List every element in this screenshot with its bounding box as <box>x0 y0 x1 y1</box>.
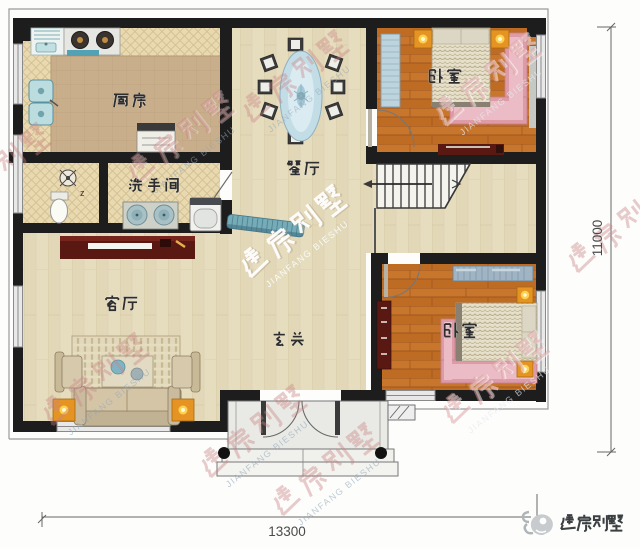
svg-text:z: z <box>80 188 85 198</box>
svg-text:11000: 11000 <box>590 220 605 257</box>
svg-text:13300: 13300 <box>268 524 306 539</box>
